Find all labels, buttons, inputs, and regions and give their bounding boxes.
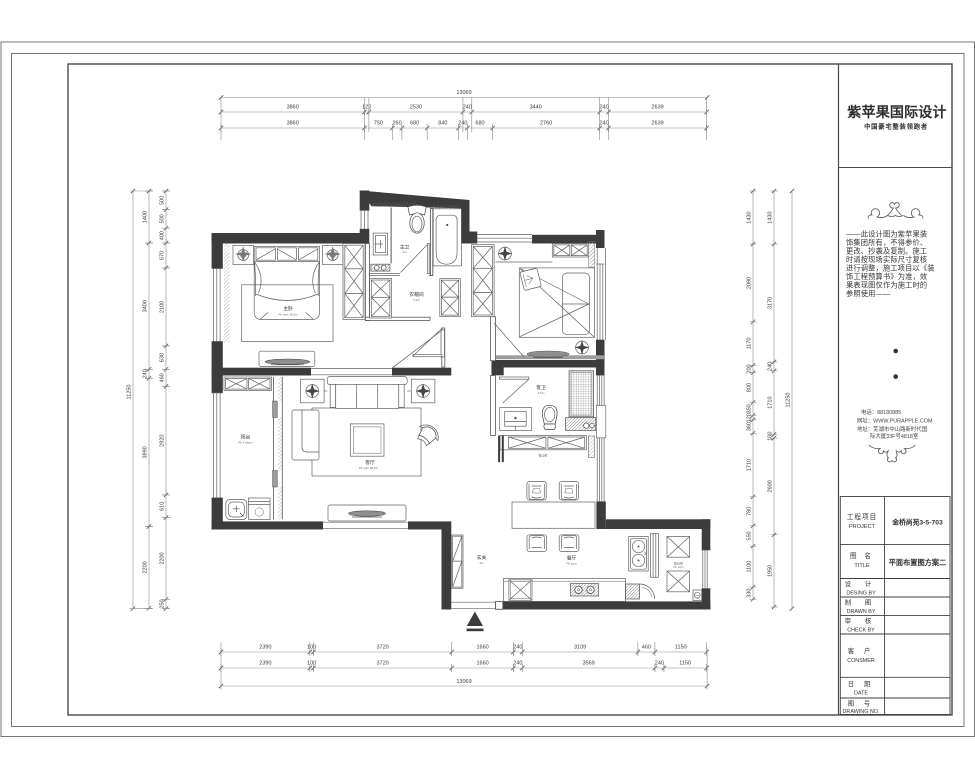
svg-text:1150: 1150 [675,645,687,651]
svg-text:500: 500 [160,214,166,223]
svg-text:240: 240 [143,369,149,378]
svg-text:3720: 3720 [376,645,388,651]
svg-text:主卧: 主卧 [283,305,293,312]
svg-text:3.5m: 3.5m [538,391,545,395]
svg-text:610: 610 [160,502,166,511]
svg-text:400: 400 [160,231,166,240]
svg-text:670: 670 [160,251,166,260]
svg-text:3990: 3990 [143,446,149,458]
svg-text:3109: 3109 [574,645,586,651]
svg-text:Pk sqm 16.5m: Pk sqm 16.5m [278,313,298,317]
svg-text:3400: 3400 [143,300,149,312]
svg-text:240: 240 [463,105,472,111]
svg-text:240: 240 [655,661,664,667]
svg-text:2639: 2639 [651,105,663,111]
svg-text:1430: 1430 [747,211,753,223]
svg-text:客 户: 客 户 [848,646,875,655]
svg-text:1950: 1950 [768,565,774,577]
svg-text:网址：WWW.PURAPPLE.COM: 网址：WWW.PURAPPLE.COM [857,417,933,425]
svg-text:2390: 2390 [259,661,271,667]
svg-text:图 号: 图 号 [848,700,875,708]
svg-text:1100: 1100 [747,561,753,573]
svg-text:550: 550 [747,531,753,540]
svg-text:780: 780 [747,507,753,516]
svg-text:1170: 1170 [747,338,753,350]
svg-text:13069: 13069 [456,679,471,685]
svg-text:日 期: 日 期 [848,680,875,688]
svg-text:240: 240 [768,362,774,371]
svg-text:紫苹果国际设计: 紫苹果国际设计 [847,104,946,120]
svg-text:800: 800 [747,383,753,392]
svg-text:100: 100 [307,645,316,651]
svg-text:客厅: 客厅 [365,459,375,466]
svg-text:平面布置图方案二: 平面布置图方案二 [889,558,947,567]
svg-text:680: 680 [410,121,419,127]
svg-text:TITLE: TITLE [854,563,869,569]
svg-text:200: 200 [747,364,753,373]
svg-text:DRAWING NO.: DRAWING NO. [843,709,880,715]
svg-text:2100: 2100 [160,301,166,313]
svg-text:2760: 2760 [540,121,552,127]
svg-text:1660: 1660 [476,645,488,651]
svg-text:参照使用——: 参照使用—— [846,289,891,298]
svg-text:460: 460 [160,373,166,382]
svg-text:350: 350 [747,404,753,413]
svg-text:460: 460 [642,645,651,651]
svg-text:图 名: 图 名 [850,551,874,560]
svg-text:DESING BY: DESING BY [846,591,876,597]
svg-text:680: 680 [475,121,484,127]
svg-text:500: 500 [160,196,166,205]
svg-text:2200: 2200 [143,561,149,573]
svg-text:260: 260 [393,121,402,127]
svg-text:Pk sqm: Pk sqm [673,565,684,569]
svg-text:250: 250 [160,599,166,608]
svg-text:工程项目: 工程项目 [847,512,877,521]
svg-text:3569: 3569 [582,661,594,667]
svg-text:PROJECT: PROJECT [849,524,876,530]
svg-text:审 核: 审 核 [845,616,878,625]
svg-text:地址：芜湖市中山路新时代国: 地址：芜湖市中山路新时代国 [857,425,927,433]
svg-text:CHECK BY: CHECK BY [847,628,875,634]
svg-text:1400: 1400 [143,211,149,223]
svg-text:100: 100 [307,661,316,667]
svg-text:餐厅: 餐厅 [567,555,577,562]
svg-text:3440: 3440 [530,105,542,111]
svg-text:Pk sqm: Pk sqm [566,562,577,566]
svg-text:1660: 1660 [476,661,488,667]
svg-text:630: 630 [160,353,166,362]
svg-text:330: 330 [747,589,753,598]
svg-text:1430: 1430 [768,211,774,223]
svg-text:2200: 2200 [160,552,166,564]
svg-text:1710: 1710 [747,459,753,471]
svg-text:840: 840 [438,121,447,127]
svg-text:Pk sqm 28.6m: Pk sqm 28.6m [359,466,379,470]
svg-text:11250: 11250 [127,385,133,400]
svg-text:1710: 1710 [768,396,774,408]
svg-text:CONSMER: CONSMER [847,658,875,664]
svg-text:750: 750 [374,121,383,127]
svg-text:3.2m: 3.2m [413,298,420,302]
svg-text:3720: 3720 [376,661,388,667]
svg-text:240: 240 [513,661,522,667]
svg-text:玄关: 玄关 [477,554,487,561]
svg-text:3860: 3860 [287,105,299,111]
svg-text:2090: 2090 [747,277,753,289]
svg-text:360: 360 [747,422,753,431]
svg-text:中国豪宅整装领跑者: 中国豪宅整装领跑者 [864,122,928,131]
svg-text:2920: 2920 [160,435,166,447]
svg-text:设 计: 设 计 [845,579,878,588]
svg-text:240: 240 [600,105,609,111]
svg-text:DATE: DATE [854,691,868,697]
svg-text:2639: 2639 [651,121,663,127]
svg-text:240: 240 [600,121,609,127]
svg-text:金桥尚苑3-5-703: 金桥尚苑3-5-703 [891,518,943,527]
svg-text:13069: 13069 [456,90,471,96]
svg-text:3170: 3170 [768,297,774,309]
svg-text:4m: 4m [402,250,407,254]
svg-text:11250: 11250 [786,393,792,408]
svg-text:1150: 1150 [679,661,691,667]
svg-text:阳台: 阳台 [241,434,251,441]
svg-text:DRAWN BY: DRAWN BY [847,609,876,615]
svg-text:120: 120 [747,413,753,422]
svg-text:制 图: 制 图 [845,598,878,607]
svg-text:120: 120 [362,105,371,111]
svg-text:3m: 3m [479,561,484,565]
svg-text:240: 240 [513,645,522,651]
svg-text:2530: 2530 [410,105,422,111]
svg-text:100: 100 [768,432,774,441]
svg-text:2390: 2390 [259,645,271,651]
svg-text:2600: 2600 [768,480,774,492]
svg-text:际大厦33F号4818室: 际大厦33F号4818室 [870,432,919,440]
svg-text:Pk 4.6sqm: Pk 4.6sqm [238,441,253,445]
svg-text:3860: 3860 [287,121,299,127]
svg-text:餐边柜: 餐边柜 [538,453,547,458]
svg-text:电话：88180885: 电话：88180885 [861,408,901,416]
